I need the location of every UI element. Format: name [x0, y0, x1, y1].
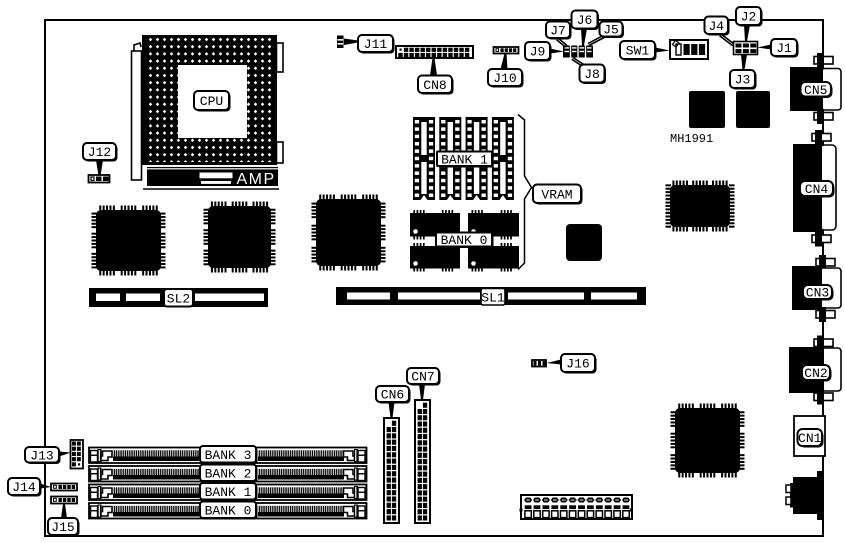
- svg-text:J11: J11: [364, 37, 388, 52]
- svg-text:BANK 3: BANK 3: [205, 448, 252, 463]
- svg-text:J2: J2: [741, 10, 757, 25]
- svg-text:CN7: CN7: [411, 370, 434, 385]
- svg-text:SL2: SL2: [167, 291, 190, 306]
- svg-text:J1: J1: [776, 41, 792, 56]
- svg-text:BANK 0: BANK 0: [441, 233, 488, 248]
- svg-text:J13: J13: [30, 448, 53, 463]
- svg-text:J8: J8: [584, 67, 600, 82]
- svg-text:J15: J15: [51, 520, 74, 535]
- svg-text:BANK 2: BANK 2: [205, 466, 252, 481]
- svg-text:J14: J14: [12, 480, 36, 495]
- svg-text:J4: J4: [708, 19, 724, 34]
- svg-text:J12: J12: [88, 145, 111, 160]
- svg-text:BANK 1: BANK 1: [441, 152, 488, 167]
- svg-text:J6: J6: [577, 13, 593, 28]
- svg-text:CN4: CN4: [805, 182, 829, 197]
- svg-text:J10: J10: [493, 71, 516, 86]
- svg-text:J16: J16: [566, 357, 589, 372]
- svg-text:BANK 1: BANK 1: [205, 485, 252, 500]
- svg-text:MH1991: MH1991: [670, 132, 713, 146]
- svg-text:BANK 0: BANK 0: [205, 503, 252, 518]
- svg-text:CN2: CN2: [804, 366, 827, 381]
- svg-text:CPU: CPU: [200, 94, 223, 109]
- svg-text:J7: J7: [550, 23, 566, 38]
- svg-text:CN1: CN1: [798, 431, 822, 446]
- svg-text:AMP: AMP: [237, 171, 276, 188]
- svg-text:CN3: CN3: [806, 286, 829, 301]
- svg-text:J5: J5: [603, 23, 619, 38]
- svg-text:SL1: SL1: [481, 290, 505, 305]
- svg-text:CN6: CN6: [381, 388, 404, 403]
- svg-text:VRAM: VRAM: [541, 187, 572, 202]
- svg-text:SW1: SW1: [626, 44, 650, 59]
- svg-text:CN8: CN8: [423, 78, 446, 93]
- svg-text:J3: J3: [735, 73, 751, 88]
- svg-text:J9: J9: [530, 45, 546, 60]
- svg-text:CN5: CN5: [804, 83, 827, 98]
